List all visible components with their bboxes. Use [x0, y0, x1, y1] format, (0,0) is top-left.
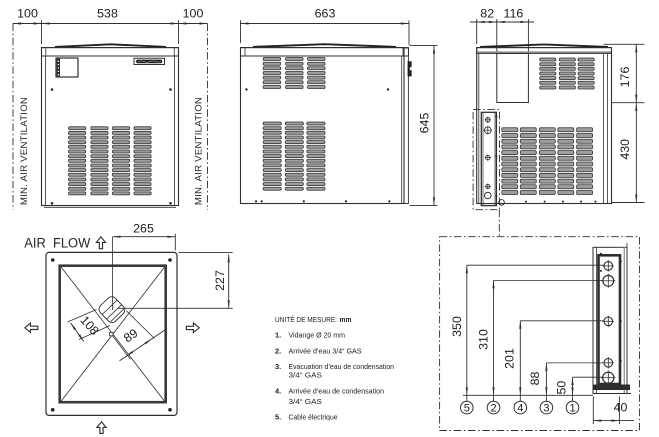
- svg-text:40: 40: [614, 401, 628, 415]
- svg-text:100: 100: [183, 7, 204, 21]
- svg-text:538: 538: [97, 7, 118, 21]
- svg-text:3.: 3.: [275, 362, 281, 371]
- svg-text:Arrivée d’eau de condensation: Arrivée d’eau de condensation: [289, 387, 385, 396]
- svg-text:100: 100: [17, 7, 38, 21]
- svg-text:89: 89: [121, 326, 140, 345]
- svg-text:2.: 2.: [275, 346, 281, 355]
- svg-text:MIN. AIR VENTILATION: MIN. AIR VENTILATION: [193, 97, 204, 205]
- svg-text:3/4“ GAS: 3/4“ GAS: [289, 371, 323, 380]
- svg-text:176: 176: [618, 67, 632, 88]
- svg-text:UNITÉ DE MESURE:: UNITÉ DE MESURE:: [275, 315, 337, 324]
- svg-text:350: 350: [450, 316, 464, 337]
- svg-text:3: 3: [543, 403, 549, 415]
- svg-text:201: 201: [503, 348, 517, 369]
- svg-text:663: 663: [315, 7, 336, 21]
- svg-text:mm: mm: [340, 315, 352, 324]
- svg-text:88: 88: [528, 372, 542, 386]
- svg-text:Cable électrique: Cable électrique: [289, 413, 338, 422]
- svg-text:82: 82: [480, 6, 494, 20]
- svg-text:310: 310: [476, 329, 490, 350]
- svg-text:5: 5: [464, 403, 470, 415]
- svg-text:MIN. AIR VENTILATION: MIN. AIR VENTILATION: [19, 97, 30, 205]
- svg-text:3/4“ GAS: 3/4“ GAS: [289, 397, 323, 406]
- svg-text:4.: 4.: [275, 387, 281, 396]
- svg-text:108: 108: [77, 313, 101, 338]
- svg-text:2: 2: [490, 403, 496, 415]
- svg-text:Evacuation d’eau de condensati: Evacuation d’eau de condensation: [289, 362, 395, 371]
- svg-text:AIR FLOW: AIR FLOW: [24, 235, 91, 251]
- svg-text:4: 4: [517, 403, 523, 415]
- svg-text:116: 116: [504, 6, 524, 20]
- svg-text:Arrivée d’eau 3/4“ GAS: Arrivée d’eau 3/4“ GAS: [289, 346, 362, 355]
- svg-text:Vidange Ø 20 mm: Vidange Ø 20 mm: [289, 331, 346, 340]
- svg-text:5.: 5.: [275, 413, 281, 422]
- svg-text:430: 430: [618, 139, 632, 160]
- svg-text:227: 227: [213, 270, 227, 291]
- svg-text:50: 50: [555, 381, 569, 395]
- svg-text:1: 1: [569, 403, 575, 415]
- svg-text:1.: 1.: [275, 331, 281, 340]
- svg-text:265: 265: [133, 222, 154, 236]
- svg-text:645: 645: [418, 113, 432, 134]
